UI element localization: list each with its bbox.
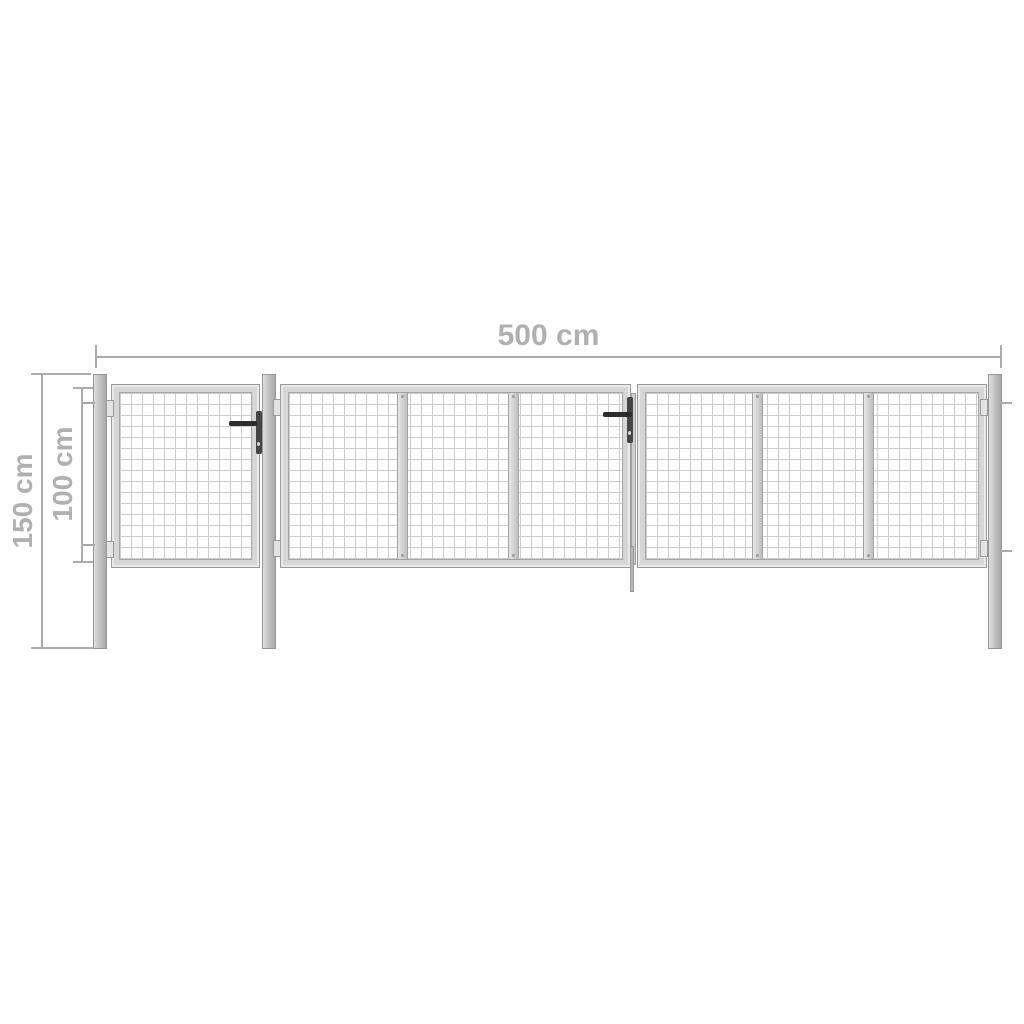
hinge-bolt: [83, 544, 95, 546]
post-left: [93, 374, 107, 649]
dimension-gate-height-tick-bottom: [73, 561, 95, 563]
dimension-width-tick-right: [1000, 345, 1002, 368]
hinge: [980, 399, 988, 416]
dimension-width-line: [96, 356, 1001, 358]
hinge: [980, 540, 988, 557]
gate-handle: [229, 421, 257, 426]
dimension-total-height-tick-top: [31, 373, 91, 375]
hinge: [273, 540, 281, 557]
mesh-panel: [288, 392, 623, 560]
vertical-brace: [508, 392, 519, 560]
vertical-brace: [863, 392, 874, 560]
pedestrian-gate: [111, 384, 260, 568]
lock-plate: [256, 411, 262, 454]
dimension-gate-height-label: 100 cm: [47, 409, 79, 539]
hinge: [273, 399, 281, 416]
hinge: [106, 400, 114, 417]
dimension-total-height-line: [41, 374, 43, 648]
mesh-panel: [119, 392, 252, 560]
double-gate-left-leaf: [280, 384, 631, 568]
hinge-bolt: [83, 402, 95, 404]
hinge-bolt: [1000, 402, 1012, 404]
dimension-gate-height-line: [81, 388, 83, 563]
gate-handle: [603, 412, 632, 417]
dimension-total-height-tick-bottom: [31, 647, 95, 649]
gate-dimension-diagram: 500 cm 150 cm 100 cm: [0, 0, 1024, 1024]
vertical-brace: [752, 392, 763, 560]
double-gate-right-leaf: [637, 384, 987, 568]
dimension-total-height-label: 150 cm: [7, 431, 39, 571]
hinge-bolt: [1000, 550, 1012, 552]
hinge: [106, 541, 114, 558]
lock-plate: [627, 397, 633, 443]
vertical-brace: [397, 392, 408, 560]
mesh-panel: [645, 392, 979, 560]
drop-rod: [630, 546, 634, 592]
dimension-width-tick-left: [95, 345, 97, 368]
post-right: [988, 374, 1002, 649]
dimension-width-label: 500 cm: [96, 320, 1001, 352]
dimension-gate-height-tick-top: [73, 387, 95, 389]
